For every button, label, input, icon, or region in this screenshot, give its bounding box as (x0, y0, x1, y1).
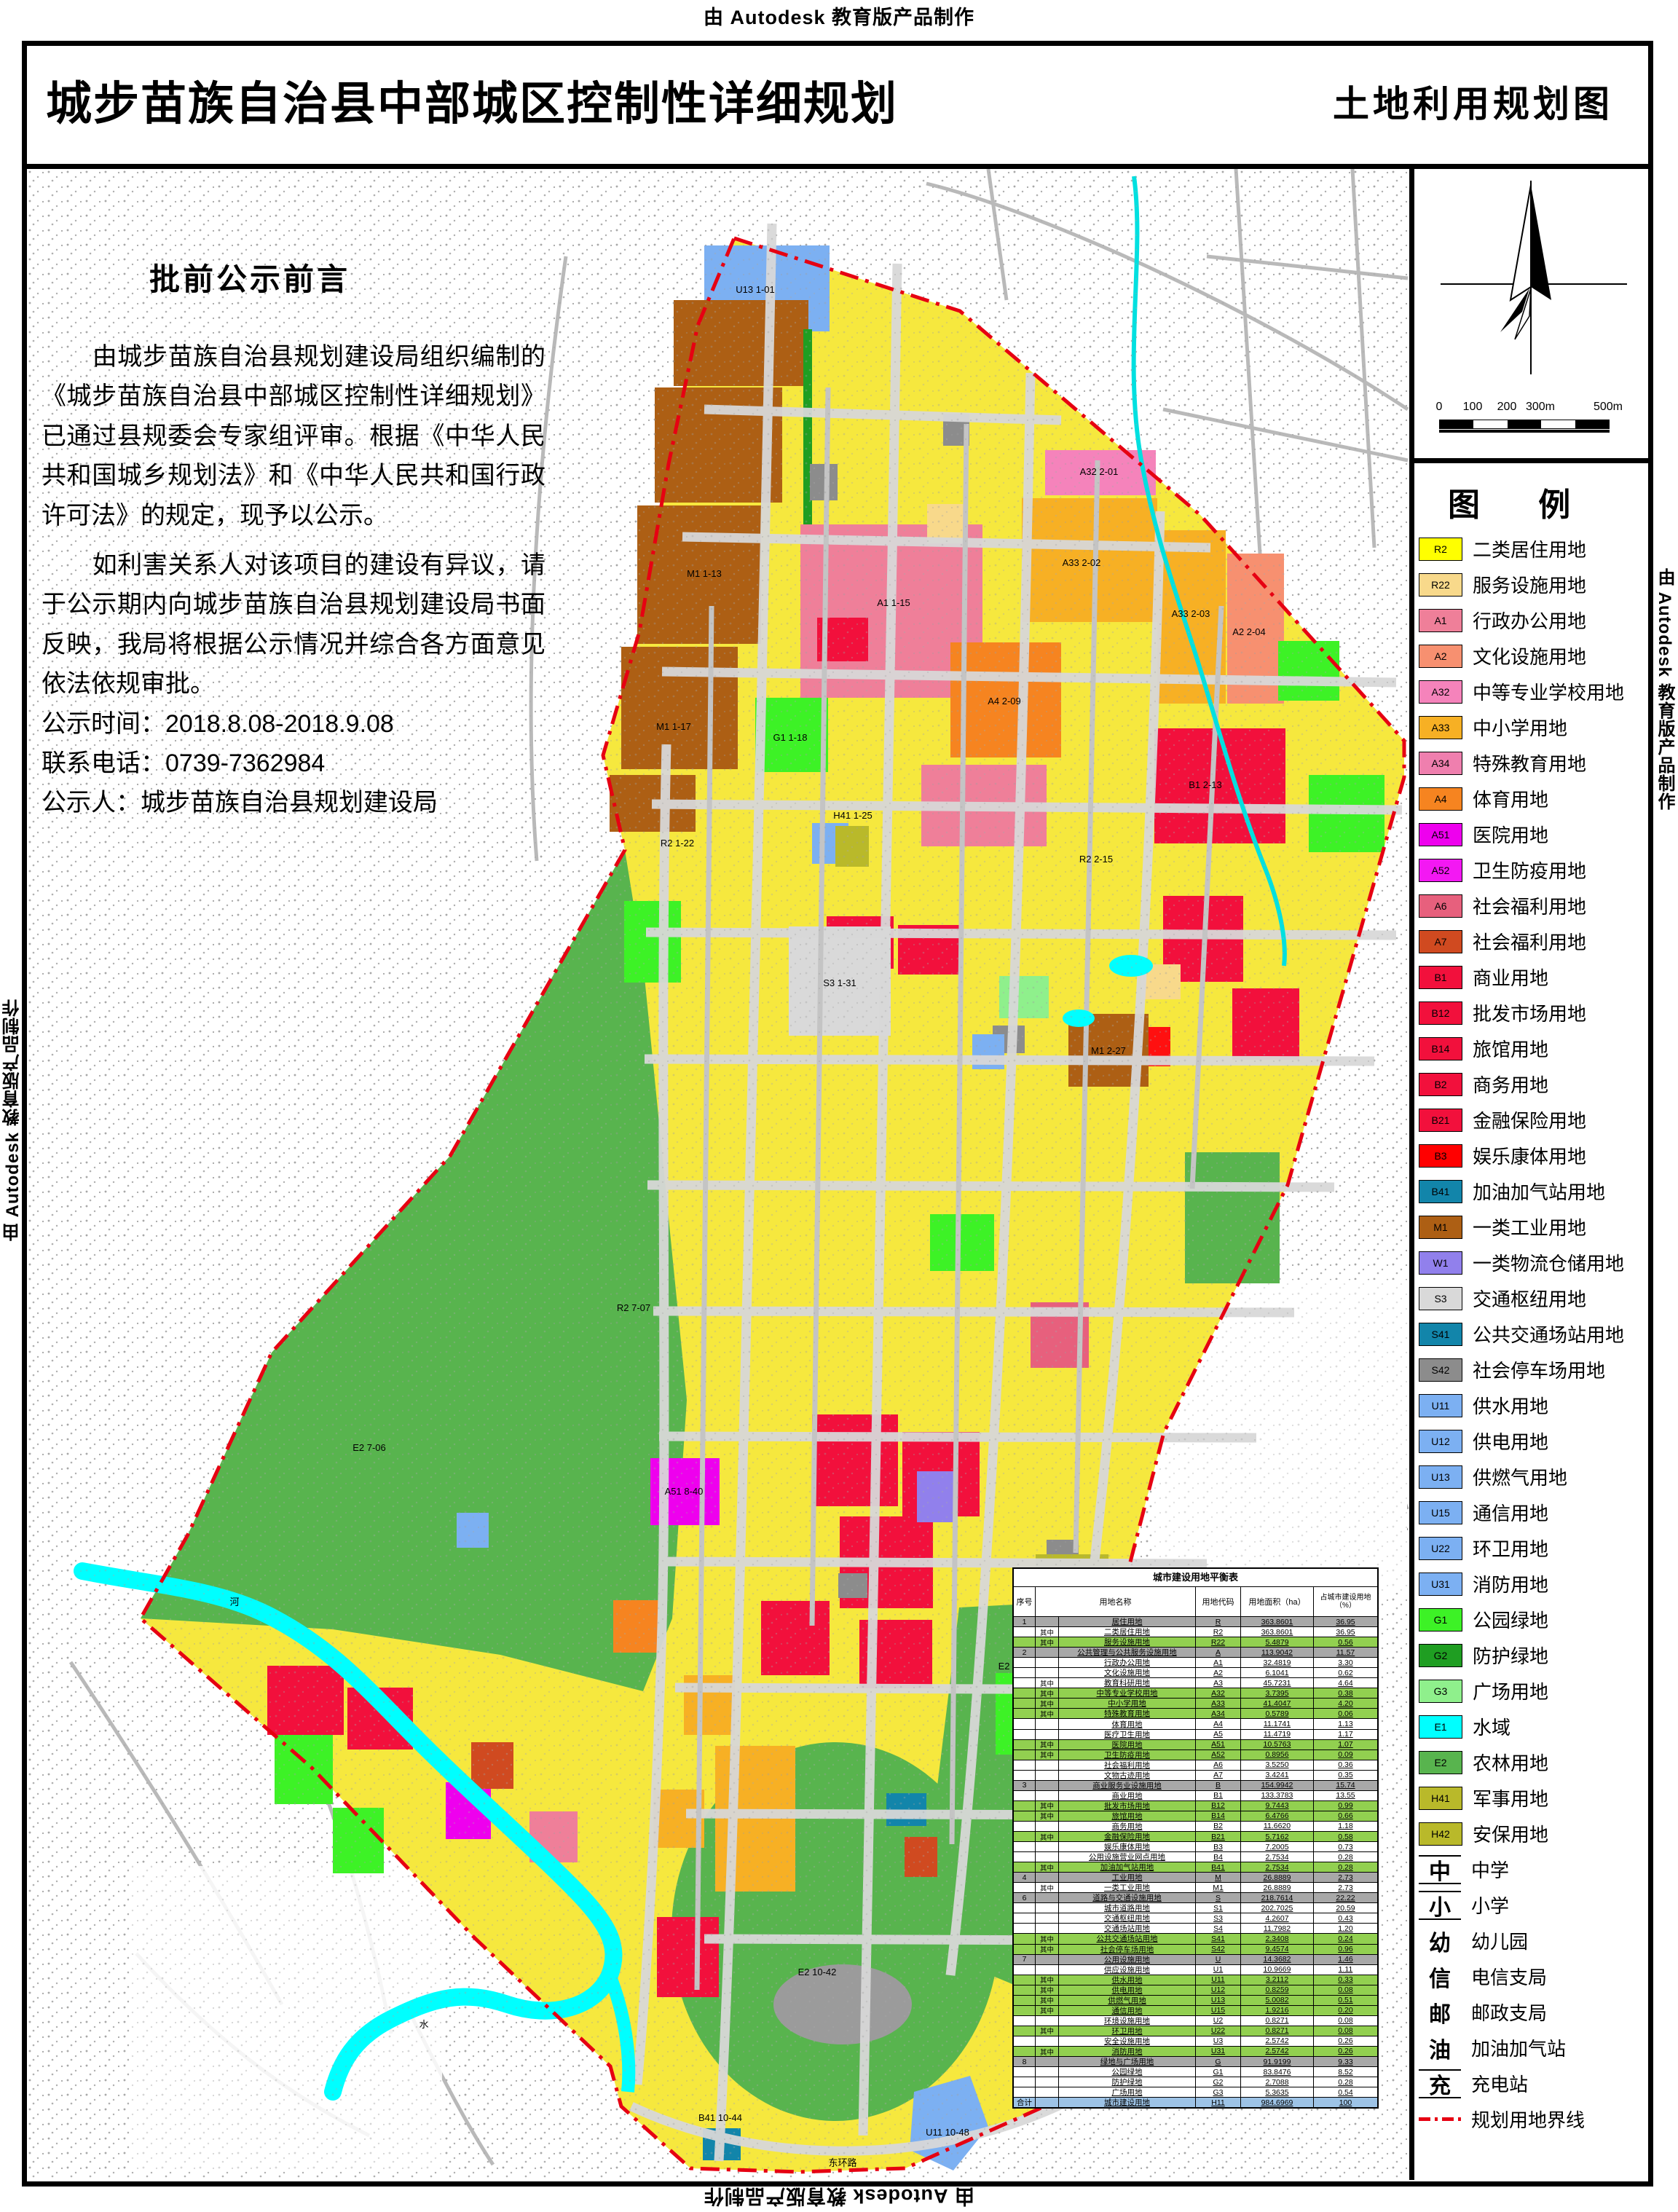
cell-c-pct: 2.73 (1314, 1873, 1377, 1882)
legend-label: 商务用地 (1473, 1071, 1548, 1098)
cell-c-pre: 其中 (1036, 2047, 1059, 2056)
legend-swatch-U22: U22 (1419, 1537, 1462, 1560)
cell-c-code: G2 (1196, 2077, 1241, 2087)
cell-c-name: 中等专业学校用地 (1059, 1688, 1196, 1698)
legend-swatch-A4: A4 (1419, 787, 1462, 811)
table-row: 安全设施用地U32.57420.26 (1014, 2036, 1377, 2047)
cell-c-name: 旅馆用地 (1059, 1811, 1196, 1821)
map-label: H41 1-25 (833, 810, 872, 821)
map-label: A33 2-02 (1063, 557, 1101, 568)
legend-label: 一类工业用地 (1473, 1213, 1586, 1240)
cell-c-pct: 4.20 (1314, 1699, 1377, 1708)
panel-divider (1409, 169, 1414, 2180)
legend-item: 油加油加气站 (1414, 2030, 1648, 2066)
legend-label: 公共交通场站用地 (1473, 1320, 1624, 1347)
cell-c-no (1014, 1832, 1036, 1841)
cell-c-no (1014, 2087, 1036, 2097)
cell-c-area: 2.5742 (1241, 2047, 1314, 2056)
cell-c-area: 5.0082 (1241, 1996, 1314, 2005)
table-row: 6道路与交通设施用地S218.761422.22 (1014, 1893, 1377, 1903)
legend-label: 加油加气站 (1471, 2034, 1566, 2061)
table-row: 体育用地A411.17411.13 (1014, 1719, 1377, 1729)
public-notice-panel: 批前公示前言 由城步苗族自治县规划建设局组织编制的《城步苗族自治县中部城区控制性… (42, 255, 545, 823)
legend-items: R2二类居住用地R22服务设施用地A1行政办公用地A2文化设施用地A32中等专业… (1414, 531, 1648, 2137)
legend-item: 邮邮政支局 (1414, 1994, 1648, 2030)
cell-c-no (1014, 1883, 1036, 1892)
cell-c-area: 0.8271 (1241, 2016, 1314, 2026)
legend-item: U11供水用地 (1414, 1388, 1648, 1423)
legend-item: B3娱乐康体用地 (1414, 1138, 1648, 1173)
cell-c-code: M1 (1196, 1883, 1241, 1892)
col-area: 用地面积（ha） (1241, 1587, 1314, 1616)
legend-item: B21金融保险用地 (1414, 1102, 1648, 1138)
legend-item: G3广场用地 (1414, 1673, 1648, 1709)
cell-c-pct: 2.73 (1314, 1883, 1377, 1892)
cell-c-no (1014, 1965, 1036, 1975)
table-row: 合计城市建设用地H11984.6969100 (1014, 2098, 1377, 2107)
legend-label: 农林用地 (1473, 1749, 1548, 1776)
cell-c-no (1014, 2026, 1036, 2036)
cell-c-code: A32 (1196, 1688, 1241, 1698)
scale-label: 0 (1436, 401, 1443, 414)
cell-c-name: 文物古迹用地 (1059, 1771, 1196, 1780)
table-row: 其中加油加气站用地B412.75340.28 (1014, 1862, 1377, 1873)
legend-swatch-A7: A7 (1419, 930, 1462, 953)
table-row: 4工业用地M26.88892.73 (1014, 1873, 1377, 1883)
cell-c-pct: 15.74 (1314, 1781, 1377, 1790)
scale-labels: 0100200300m500m (1439, 401, 1614, 417)
cell-c-no (1014, 1996, 1036, 2005)
cell-c-area: 218.7614 (1241, 1893, 1314, 1902)
legend-label: 电信支局 (1471, 1963, 1547, 1990)
legend-item: A1行政办公用地 (1414, 602, 1648, 638)
cell-c-name: 通信用地 (1059, 2006, 1196, 2015)
legend-item: R2二类居住用地 (1414, 531, 1648, 567)
legend-label: 安保用地 (1473, 1820, 1548, 1847)
legend-label: 一类物流仓储用地 (1473, 1249, 1624, 1276)
cell-c-area: 2.5742 (1241, 2036, 1314, 2046)
cell-c-pct: 0.54 (1314, 2087, 1377, 2097)
cell-c-name: 城市建设用地 (1059, 2098, 1196, 2107)
cell-c-pct: 0.36 (1314, 1760, 1377, 1770)
cell-c-no (1014, 1903, 1036, 1913)
cell-c-no (1014, 2077, 1036, 2087)
cell-c-area: 6.4766 (1241, 1811, 1314, 1821)
map-label: U11 10-48 (926, 2127, 969, 2138)
cell-c-area: 2.7088 (1241, 2077, 1314, 2087)
cell-c-area: 3.7395 (1241, 1688, 1314, 1698)
cell-c-code: S1 (1196, 1903, 1241, 1913)
cell-c-pre: 其中 (1036, 2026, 1059, 2036)
cell-c-no (1014, 1811, 1036, 1821)
legend-item: A6社会福利用地 (1414, 888, 1648, 924)
legend-item: G2防护绿地 (1414, 1637, 1648, 1673)
legend-item: U12供电用地 (1414, 1423, 1648, 1459)
legend-item: A7社会福利用地 (1414, 924, 1648, 959)
legend-label: 体育用地 (1473, 785, 1548, 812)
legend-label: 文化设施用地 (1473, 642, 1586, 669)
cell-c-area: 10.5763 (1241, 1740, 1314, 1749)
legend-swatch-S41: S41 (1419, 1323, 1462, 1346)
cell-c-code: S4 (1196, 1924, 1241, 1933)
table-row: 其中公共交通场站用地S412.34080.24 (1014, 1934, 1377, 1944)
scale-label: 500m (1594, 401, 1623, 414)
sheet-frame: 城步苗族自治县中部城区控制性详细规划 土地利用规划图 (22, 41, 1653, 2187)
legend-label: 中学 (1471, 1856, 1509, 1883)
cell-c-code: A1 (1196, 1658, 1241, 1667)
cell-c-no (1014, 1842, 1036, 1851)
table-row: 其中供电用地U120.82590.08 (1014, 1985, 1377, 1996)
cell-c-pre: 其中 (1036, 1945, 1059, 1954)
legend-label: 供电用地 (1473, 1428, 1548, 1455)
cell-c-pre (1036, 1924, 1059, 1933)
table-row: 3商业服务业设施用地B154.994215.74 (1014, 1781, 1377, 1791)
cell-c-name: 加油加气站用地 (1059, 1862, 1196, 1872)
cell-c-code: B3 (1196, 1842, 1241, 1851)
cell-c-area: 41.4047 (1241, 1699, 1314, 1708)
cell-c-area: 6.1041 (1241, 1668, 1314, 1677)
legend-swatch-A52: A52 (1419, 859, 1462, 882)
legend-label: 规划用地界线 (1471, 2106, 1585, 2133)
legend-item: B2商务用地 (1414, 1066, 1648, 1102)
legend-swatch-E1: E1 (1419, 1715, 1462, 1739)
cell-c-pct: 0.08 (1314, 2026, 1377, 2036)
cell-c-pct: 0.99 (1314, 1801, 1377, 1811)
table-row: 其中医院用地A5110.57631.07 (1014, 1740, 1377, 1750)
cell-c-name: 交通场站用地 (1059, 1924, 1196, 1933)
cell-c-pct: 4.64 (1314, 1678, 1377, 1688)
table-row: 7公用设施用地U14.36821.46 (1014, 1955, 1377, 1965)
map-label: A1 1-15 (877, 597, 910, 608)
cell-c-no (1014, 1975, 1036, 1985)
legend-item: E2农林用地 (1414, 1744, 1648, 1780)
cell-c-name: 特殊教育用地 (1059, 1709, 1196, 1718)
cell-c-area: 154.9942 (1241, 1781, 1314, 1790)
legend-label: 供燃气用地 (1473, 1463, 1567, 1490)
legend-swatch-G2: G2 (1419, 1644, 1462, 1667)
cell-c-area: 26.8889 (1241, 1883, 1314, 1892)
legend-item: A52卫生防疫用地 (1414, 852, 1648, 888)
cell-c-no (1014, 1945, 1036, 1954)
cell-c-pre (1036, 1730, 1059, 1739)
map-label: M1 1-17 (656, 721, 691, 732)
cell-c-pct: 0.58 (1314, 1832, 1377, 1841)
cell-c-no (1014, 1760, 1036, 1770)
cell-c-code: B21 (1196, 1832, 1241, 1841)
cell-c-no (1014, 1862, 1036, 1872)
cell-c-name: 公用设施营业网点用地 (1059, 1852, 1196, 1862)
legend-label: 医院用地 (1473, 821, 1548, 848)
legend-item: H41军事用地 (1414, 1780, 1648, 1816)
cell-c-pre: 其中 (1036, 1750, 1059, 1760)
legend-swatch-W1: W1 (1419, 1251, 1462, 1275)
table-row: 8绿地与广场用地G91.91999.33 (1014, 2057, 1377, 2067)
cell-c-pct: 1.11 (1314, 1965, 1377, 1975)
legend-item: S3交通枢纽用地 (1414, 1280, 1648, 1316)
cell-c-no: 7 (1014, 1955, 1036, 1964)
legend-swatch-B12: B12 (1419, 1001, 1462, 1025)
cell-c-pre: 其中 (1036, 1678, 1059, 1688)
legend-label: 防护绿地 (1473, 1642, 1548, 1669)
cell-c-no: 8 (1014, 2057, 1036, 2066)
legend-swatch-A2: A2 (1419, 645, 1462, 668)
legend-symbol: 充 (1419, 2069, 1461, 2098)
cell-c-pct: 1.17 (1314, 1730, 1377, 1739)
map-label: A4 2-09 (988, 696, 1021, 706)
map-label: A51 8-40 (665, 1486, 704, 1497)
cell-c-code: U (1196, 1955, 1241, 1964)
cell-c-pct: 0.96 (1314, 1945, 1377, 1954)
table-row: 交通场站用地S411.79821.20 (1014, 1924, 1377, 1934)
cell-c-pct: 1.20 (1314, 1924, 1377, 1933)
cell-c-name: 教育科研用地 (1059, 1678, 1196, 1688)
cell-c-pre (1036, 1719, 1059, 1728)
cell-c-pre: 其中 (1036, 1740, 1059, 1749)
cell-c-pre: 其中 (1036, 1996, 1059, 2005)
legend-swatch-M1: M1 (1419, 1216, 1462, 1239)
legend-label: 加油加气站用地 (1473, 1178, 1605, 1205)
cell-c-code: U31 (1196, 2047, 1241, 2056)
table-row: 其中供燃气用地U135.00820.51 (1014, 1996, 1377, 2006)
cell-c-name: 工业用地 (1059, 1873, 1196, 1882)
map-label: 水 (419, 2019, 428, 2030)
cell-c-code: G1 (1196, 2067, 1241, 2077)
table-row: 其中特殊教育用地A340.57890.06 (1014, 1709, 1377, 1719)
cell-c-pre (1036, 1648, 1059, 1657)
cell-c-pct: 3.30 (1314, 1658, 1377, 1667)
notice-paragraph-1: 由城步苗族自治县规划建设局组织编制的《城步苗族自治县中部城区控制性详细规划》已通… (42, 337, 545, 535)
legend-item: W1一类物流仓储用地 (1414, 1245, 1648, 1280)
cell-c-no (1014, 1771, 1036, 1780)
table-row: 其中旅馆用地B146.47660.66 (1014, 1811, 1377, 1822)
cell-c-area: 11.1741 (1241, 1719, 1314, 1728)
legend-label: 社会福利用地 (1473, 892, 1586, 919)
table-row: 文化设施用地A26.10410.62 (1014, 1668, 1377, 1678)
cell-c-no (1014, 2006, 1036, 2015)
sheet-content: U13 1-01M1 1-13M1 1-17A1 1-15A32 2-01A33… (27, 169, 1648, 2180)
cell-c-pct: 0.08 (1314, 1985, 1377, 1995)
cell-c-area: 0.5789 (1241, 1709, 1314, 1718)
cell-c-pre: 其中 (1036, 1975, 1059, 1985)
cell-c-pre: 其中 (1036, 1832, 1059, 1841)
cell-c-code: R2 (1196, 1627, 1241, 1637)
legend-symbol: 信 (1419, 1966, 1461, 1988)
cell-c-name: 中小学用地 (1059, 1699, 1196, 1708)
map-label: B41 10-44 (698, 2112, 742, 2123)
scale-strip (1439, 420, 1610, 429)
cell-c-no (1014, 1719, 1036, 1728)
cell-c-pre: 其中 (1036, 1709, 1059, 1718)
cell-c-name: 体育用地 (1059, 1719, 1196, 1728)
cell-c-name: 医院用地 (1059, 1740, 1196, 1749)
cell-c-pct: 0.28 (1314, 1852, 1377, 1862)
cell-c-no: 4 (1014, 1873, 1036, 1882)
cell-c-code: B12 (1196, 1801, 1241, 1811)
cell-c-pct: 20.59 (1314, 1903, 1377, 1913)
table-row: 供应设施用地U110.96691.11 (1014, 1965, 1377, 1975)
cell-c-pct: 0.62 (1314, 1668, 1377, 1677)
cell-c-code: A34 (1196, 1709, 1241, 1718)
cell-c-code: A (1196, 1648, 1241, 1657)
cell-c-pct: 11.57 (1314, 1648, 1377, 1657)
legend-swatch-U31: U31 (1419, 1573, 1462, 1596)
cell-c-pct: 0.09 (1314, 1750, 1377, 1760)
legend-item: U13供燃气用地 (1414, 1459, 1648, 1495)
cell-c-name: 一类工业用地 (1059, 1883, 1196, 1892)
cell-c-no (1014, 1627, 1036, 1637)
cell-c-code: U22 (1196, 2026, 1241, 2036)
cell-c-no (1014, 1637, 1036, 1647)
cell-c-pct: 0.20 (1314, 2006, 1377, 2015)
legend-label: 社会福利用地 (1473, 928, 1586, 955)
cell-c-pre (1036, 1913, 1059, 1923)
legend-item: A32中等专业学校用地 (1414, 674, 1648, 709)
table-row: 其中通信用地U151.92160.20 (1014, 2006, 1377, 2016)
table-row: 其中一类工业用地M126.88892.73 (1014, 1883, 1377, 1893)
scale-label: 100 (1463, 401, 1483, 414)
legend-title: 图 例 (1448, 479, 1648, 525)
notice-phone: 联系电话：0739-7362984 (42, 744, 545, 783)
cell-c-no: 3 (1014, 1781, 1036, 1790)
table-title: 城市建设用地平衡表 (1014, 1569, 1377, 1587)
cell-c-name: 环卫用地 (1059, 2026, 1196, 2036)
cell-c-code: B2 (1196, 1822, 1241, 1831)
north-arrow-icon (1414, 169, 1648, 387)
legend-label: 卫生防疫用地 (1473, 857, 1586, 883)
legend-item: G1公园绿地 (1414, 1602, 1648, 1637)
cell-c-pct: 0.66 (1314, 1811, 1377, 1821)
cell-c-area: 5.3635 (1241, 2087, 1314, 2097)
cell-c-area: 0.8259 (1241, 1985, 1314, 1995)
cell-c-name: 消防用地 (1059, 2047, 1196, 2056)
table-row: 广场用地G35.36350.54 (1014, 2087, 1377, 2098)
legend-swatch-B41: B41 (1419, 1180, 1462, 1203)
legend-swatch-B1: B1 (1419, 966, 1462, 989)
table-row: 公用设施营业网点用地B42.75340.28 (1014, 1852, 1377, 1862)
cell-c-name: 文化设施用地 (1059, 1668, 1196, 1677)
cell-c-code: G3 (1196, 2087, 1241, 2097)
cell-c-area: 5.7162 (1241, 1832, 1314, 1841)
cell-c-no: 6 (1014, 1893, 1036, 1902)
legend-swatch-G1: G1 (1419, 1608, 1462, 1632)
table-header-row: 序号 用地名称 用地代码 用地面积（ha） 占城市建设用地（%） (1014, 1587, 1377, 1617)
legend-label: 消防用地 (1473, 1570, 1548, 1597)
legend-label: 中小学用地 (1473, 714, 1567, 741)
cell-c-pct: 0.24 (1314, 1934, 1377, 1943)
right-autodesk-credit: 由 Autodesk 教育版产品制作 (1655, 466, 1677, 912)
cell-c-pre (1036, 1771, 1059, 1780)
scale-underline (1439, 430, 1610, 433)
cell-c-name: 娱乐康体用地 (1059, 1842, 1196, 1851)
legend-item: A33中小学用地 (1414, 709, 1648, 745)
notice-time: 公示时间：2018.8.08-2018.9.08 (42, 704, 545, 744)
scale-label: 300m (1526, 401, 1555, 414)
cell-c-name: 公用设施用地 (1059, 1955, 1196, 1964)
cell-c-no: 合计 (1014, 2098, 1036, 2107)
table-body: 1居住用地R363.860136.95其中二类居住用地R2363.860136.… (1014, 1617, 1377, 2107)
page-title: 城步苗族自治县中部城区控制性详细规划 (46, 46, 898, 162)
legend-label: 中等专业学校用地 (1473, 678, 1624, 705)
legend-box: 图 例 R2二类居住用地R22服务设施用地A1行政办公用地A2文化设施用地A32… (1414, 468, 1648, 2180)
legend-label: 公园绿地 (1473, 1606, 1548, 1633)
cell-c-pre: 其中 (1036, 1699, 1059, 1708)
cell-c-no (1014, 1658, 1036, 1667)
cell-c-pct: 8.52 (1314, 2067, 1377, 2077)
cell-c-code: U15 (1196, 2006, 1241, 2015)
cell-c-name: 安全设施用地 (1059, 2036, 1196, 2046)
legend-label: 供水用地 (1473, 1392, 1548, 1419)
cell-c-area: 3.5250 (1241, 1760, 1314, 1770)
legend-label: 社会停车场用地 (1473, 1356, 1605, 1383)
legend-swatch-H42: H42 (1419, 1822, 1462, 1846)
table-row: 其中中小学用地A3341.40474.20 (1014, 1699, 1377, 1709)
legend-symbol: 幼 (1419, 1930, 1461, 1952)
cell-c-code: A2 (1196, 1668, 1241, 1677)
cell-c-no (1014, 2067, 1036, 2077)
cell-c-pre: 其中 (1036, 1637, 1059, 1647)
cell-c-name: 二类居住用地 (1059, 1627, 1196, 1637)
cell-c-pre (1036, 1822, 1059, 1831)
cell-c-code: A7 (1196, 1771, 1241, 1780)
legend-swatch-E2: E2 (1419, 1751, 1462, 1774)
cell-c-name: 公共交通场站用地 (1059, 1934, 1196, 1943)
cell-c-pre (1036, 1842, 1059, 1851)
cell-c-area: 83.8476 (1241, 2067, 1314, 2077)
map-label: S3 1-31 (823, 977, 856, 988)
map-label: G1 1-18 (773, 732, 808, 743)
cell-c-name: 社会福利用地 (1059, 1760, 1196, 1770)
cell-c-pct: 0.06 (1314, 1709, 1377, 1718)
cell-c-code: U1 (1196, 1965, 1241, 1975)
cell-c-no (1014, 1688, 1036, 1698)
map-label: 河 (229, 1597, 239, 1607)
cell-c-name: 医疗卫生用地 (1059, 1730, 1196, 1739)
table-row: 其中二类居住用地R2363.860136.95 (1014, 1627, 1377, 1637)
cell-c-code: B1 (1196, 1791, 1241, 1800)
cell-c-pct: 1.46 (1314, 1955, 1377, 1964)
cell-c-name: 供燃气用地 (1059, 1996, 1196, 2005)
legend-item: R22服务设施用地 (1414, 567, 1648, 602)
legend-item: 信电信支局 (1414, 1959, 1648, 1994)
legend-item: M1一类工业用地 (1414, 1209, 1648, 1245)
legend-item: 充充电站 (1414, 2066, 1648, 2101)
map-label: R2 7-07 (617, 1302, 650, 1313)
cell-c-pre: 其中 (1036, 1801, 1059, 1811)
legend-symbol: 邮 (1419, 2002, 1461, 2023)
cell-c-no (1014, 1668, 1036, 1677)
cell-c-pct: 1.18 (1314, 1822, 1377, 1831)
cell-c-pre: 其中 (1036, 1883, 1059, 1892)
legend-swatch-A33: A33 (1419, 716, 1462, 739)
cell-c-area: 1.9216 (1241, 2006, 1314, 2015)
legend-label: 行政办公用地 (1473, 607, 1586, 634)
cell-c-code: U2 (1196, 2016, 1241, 2026)
land-balance-table: 城市建设用地平衡表 序号 用地名称 用地代码 用地面积（ha） 占城市建设用地（… (1012, 1567, 1379, 2109)
cell-c-no (1014, 2036, 1036, 2046)
cell-c-area: 0.8956 (1241, 1750, 1314, 1760)
cell-c-pre (1036, 2098, 1059, 2107)
table-row: 其中服务设施用地R225.48790.56 (1014, 1637, 1377, 1648)
cell-c-code: B41 (1196, 1862, 1241, 1872)
cell-c-pct: 0.35 (1314, 1771, 1377, 1780)
cell-c-no (1014, 1913, 1036, 1923)
cell-c-pre: 其中 (1036, 1862, 1059, 1872)
legend-swatch-A34: A34 (1419, 752, 1462, 775)
legend-swatch-U15: U15 (1419, 1501, 1462, 1524)
legend-label: 水域 (1473, 1713, 1510, 1740)
cell-c-name: 商务用地 (1059, 1822, 1196, 1831)
cell-c-code: R (1196, 1617, 1241, 1626)
